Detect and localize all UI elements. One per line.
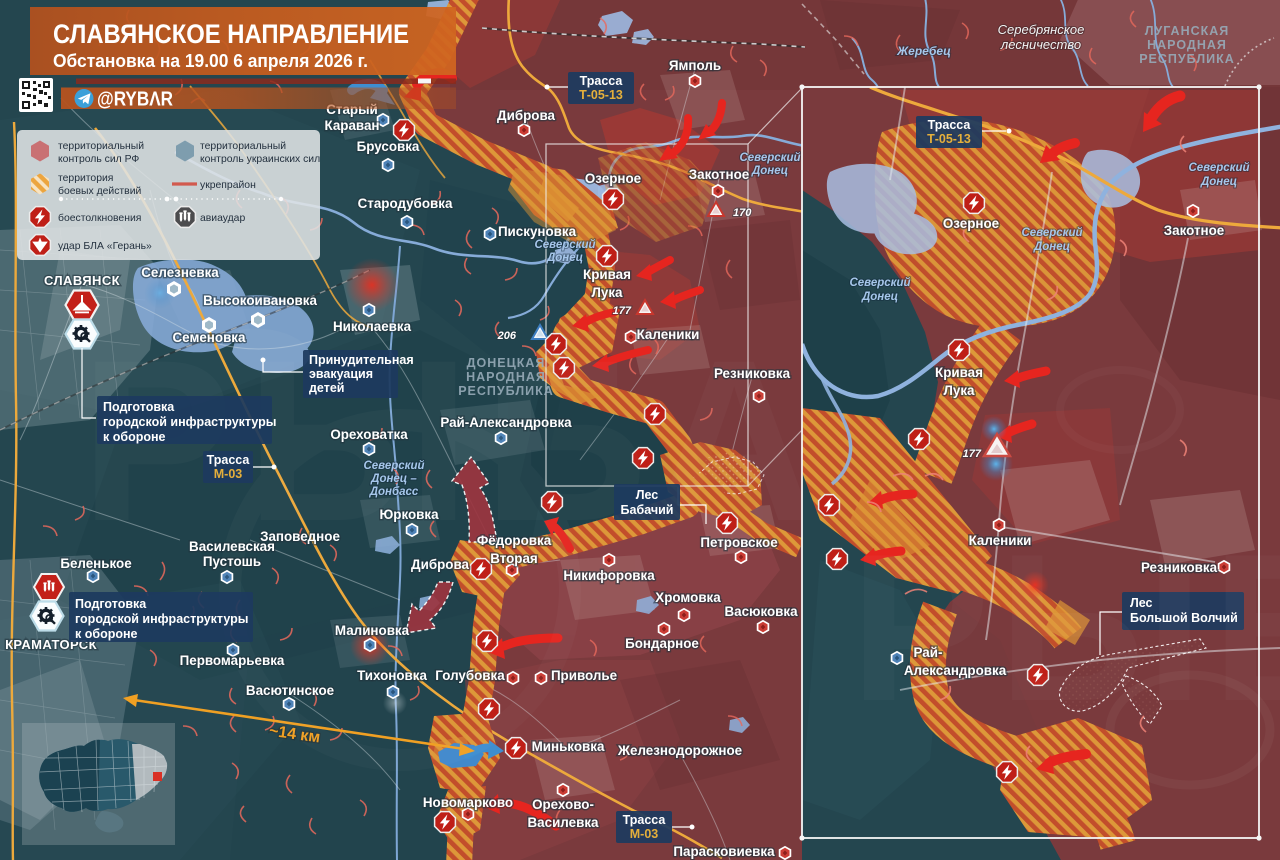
svg-text:Диброва: Диброва	[411, 557, 469, 572]
svg-text:Орехово-: Орехово-	[532, 797, 594, 812]
svg-text:Семеновка: Семеновка	[173, 330, 246, 345]
svg-text:удар БЛА «Герань»: удар БЛА «Герань»	[58, 241, 152, 252]
svg-text:Васюковка: Васюковка	[724, 604, 798, 619]
svg-text:Васютинское: Васютинское	[246, 683, 334, 698]
svg-text:РЫБ: РЫБ	[850, 510, 1280, 745]
svg-text:Николаевка: Николаевка	[333, 319, 412, 334]
svg-text:Северский: Северский	[739, 152, 800, 164]
svg-text:Пустошь: Пустошь	[203, 554, 261, 569]
svg-text:Высокоивановка: Высокоивановка	[203, 293, 317, 308]
svg-text:Резниковка: Резниковка	[714, 366, 791, 381]
svg-text:Каленики: Каленики	[637, 327, 700, 342]
svg-text:Фёдоровка: Фёдоровка	[477, 533, 552, 548]
svg-text:территория: территория	[58, 173, 113, 184]
svg-text:Пискуновка: Пискуновка	[498, 224, 577, 239]
svg-text:Подготовка: Подготовка	[103, 400, 175, 414]
svg-text:Подготовка: Подготовка	[75, 597, 147, 611]
svg-text:Донбасс: Донбасс	[369, 486, 419, 498]
svg-text:Железнодорожное: Железнодорожное	[617, 743, 742, 758]
svg-text:Принудительная: Принудительная	[309, 353, 414, 367]
svg-text:Караван: Караван	[324, 118, 379, 133]
svg-text:Донец: Донец	[861, 291, 898, 303]
svg-text:Трасса: Трасса	[623, 813, 667, 827]
svg-text:Т-05-13: Т-05-13	[927, 132, 971, 146]
svg-text:Бондарное: Бондарное	[625, 636, 699, 651]
svg-text:Донец: Донец	[1033, 241, 1070, 253]
svg-text:Селезневка: Селезневка	[141, 265, 219, 280]
svg-text:Диброва: Диброва	[497, 108, 555, 123]
svg-text:Северский: Северский	[1021, 227, 1082, 239]
svg-text:Лес: Лес	[636, 488, 659, 502]
svg-text:ЛУГАНСКАЯ: ЛУГАНСКАЯ	[1145, 24, 1230, 38]
svg-text:Трасса: Трасса	[207, 453, 251, 467]
svg-text:детей: детей	[309, 381, 344, 395]
svg-text:Василевка: Василевка	[528, 815, 600, 830]
svg-text:Хромовка: Хромовка	[655, 590, 721, 605]
svg-text:Закотное: Закотное	[689, 167, 749, 182]
svg-text:эвакуация: эвакуация	[309, 367, 373, 381]
svg-text:Брусовка: Брусовка	[357, 139, 420, 154]
svg-text:Тихоновка: Тихоновка	[357, 668, 427, 683]
svg-text:М-03: М-03	[630, 827, 659, 841]
svg-text:боестолкновения: боестолкновения	[58, 212, 141, 224]
svg-text:Голубовка: Голубовка	[435, 668, 505, 683]
svg-text:Новомарково: Новомарково	[423, 795, 513, 810]
svg-text:Малиновка: Малиновка	[335, 623, 410, 638]
svg-text:Ямполь: Ямполь	[669, 58, 721, 73]
svg-text:Юрковка: Юрковка	[379, 507, 439, 522]
svg-text:Первомарьевка: Первомарьевка	[180, 653, 285, 668]
svg-text:Донец: Донец	[1200, 176, 1237, 188]
svg-text:Северский: Северский	[363, 460, 424, 472]
svg-text:Северский: Северский	[534, 239, 595, 251]
svg-text:городской инфраструктуры: городской инфраструктуры	[103, 415, 276, 429]
svg-text:Приволье: Приволье	[551, 668, 617, 683]
svg-text:Петровское: Петровское	[700, 535, 777, 550]
svg-text:Обстановка на 19.00 6 апреля 2: Обстановка на 19.00 6 апреля 2026 г.	[53, 50, 368, 71]
svg-text:Ореховатка: Ореховатка	[330, 427, 408, 442]
svg-text:Закотное: Закотное	[1164, 223, 1224, 238]
svg-text:городской инфраструктуры: городской инфраструктуры	[75, 612, 248, 626]
svg-text:НАРОДНАЯ: НАРОДНАЯ	[466, 370, 546, 384]
svg-text:Жеребец: Жеребец	[896, 44, 951, 58]
svg-text:@RYBΛR: @RYBΛR	[97, 89, 173, 111]
svg-text:укрепрайон: укрепрайон	[200, 180, 256, 191]
svg-text:Рай-Александровка: Рай-Александровка	[440, 415, 572, 430]
svg-text:территориальный: территориальный	[200, 141, 286, 152]
svg-text:авиаудар: авиаудар	[200, 213, 245, 224]
svg-text:НАРОДНАЯ: НАРОДНАЯ	[1147, 38, 1227, 52]
svg-text:Парасковиевка: Парасковиевка	[673, 844, 775, 859]
svg-text:СЛАВЯНСКОЕ НАПРАВЛЕНИЕ: СЛАВЯНСКОЕ НАПРАВЛЕНИЕ	[53, 19, 409, 49]
svg-text:Стародубовка: Стародубовка	[358, 196, 453, 211]
svg-text:Донец: Донец	[751, 165, 788, 177]
svg-text:Никифоровка: Никифоровка	[563, 568, 655, 583]
svg-text:лесничество: лесничество	[1000, 37, 1081, 52]
svg-text:170: 170	[733, 207, 752, 219]
svg-text:Озерное: Озерное	[943, 216, 999, 231]
svg-text:Кривая: Кривая	[935, 365, 983, 380]
svg-text:Лука: Лука	[592, 285, 624, 300]
svg-text:Озерное: Озерное	[585, 171, 641, 186]
svg-text:к обороне: к обороне	[103, 430, 166, 444]
svg-text:контроль сил РФ: контроль сил РФ	[58, 154, 139, 165]
svg-text:Вторая: Вторая	[490, 551, 538, 566]
svg-text:Беленькое: Беленькое	[60, 556, 131, 571]
svg-text:Серебрянское: Серебрянское	[998, 22, 1085, 37]
svg-text:Лука: Лука	[944, 383, 976, 398]
svg-text:Бабачий: Бабачий	[621, 503, 674, 517]
svg-text:Трасса: Трасса	[580, 74, 624, 88]
svg-text:РЕСПУБЛИКА: РЕСПУБЛИКА	[1139, 52, 1235, 66]
svg-text:к обороне: к обороне	[75, 627, 138, 641]
svg-text:территориальный: территориальный	[58, 141, 144, 152]
svg-text:Донец –: Донец –	[370, 473, 417, 485]
svg-text:177: 177	[963, 448, 982, 460]
svg-text:Кривая: Кривая	[583, 267, 631, 282]
svg-text:контроль украинских сил: контроль украинских сил	[200, 154, 320, 165]
svg-text:РЕСПУБЛИКА: РЕСПУБЛИКА	[458, 384, 554, 398]
svg-text:Т-05-13: Т-05-13	[579, 88, 623, 102]
svg-text:боевых действий: боевых действий	[58, 185, 142, 197]
svg-text:ДОНЕЦКАЯ: ДОНЕЦКАЯ	[467, 356, 546, 370]
svg-text:Северский: Северский	[1188, 162, 1249, 174]
svg-text:Северский: Северский	[849, 277, 910, 289]
svg-text:Донец: Донец	[546, 252, 583, 264]
svg-text:Миньковка: Миньковка	[532, 739, 605, 754]
svg-text:Трасса: Трасса	[928, 118, 972, 132]
svg-text:СЛАВЯНСК: СЛАВЯНСК	[44, 273, 120, 288]
svg-text:М-03: М-03	[214, 467, 243, 481]
svg-text:Василевская: Василевская	[189, 539, 275, 554]
